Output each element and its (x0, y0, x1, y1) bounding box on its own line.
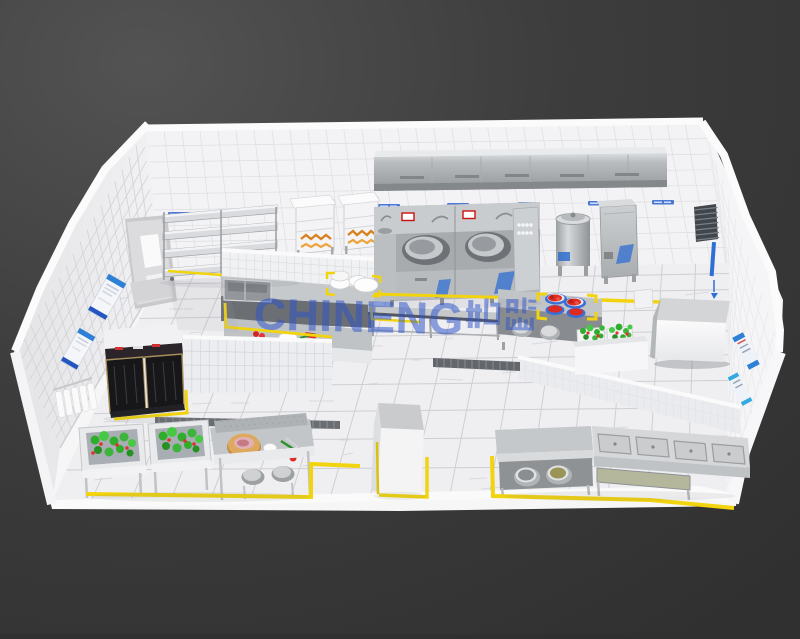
svg-text:CHINENG: CHINENG (254, 290, 465, 344)
